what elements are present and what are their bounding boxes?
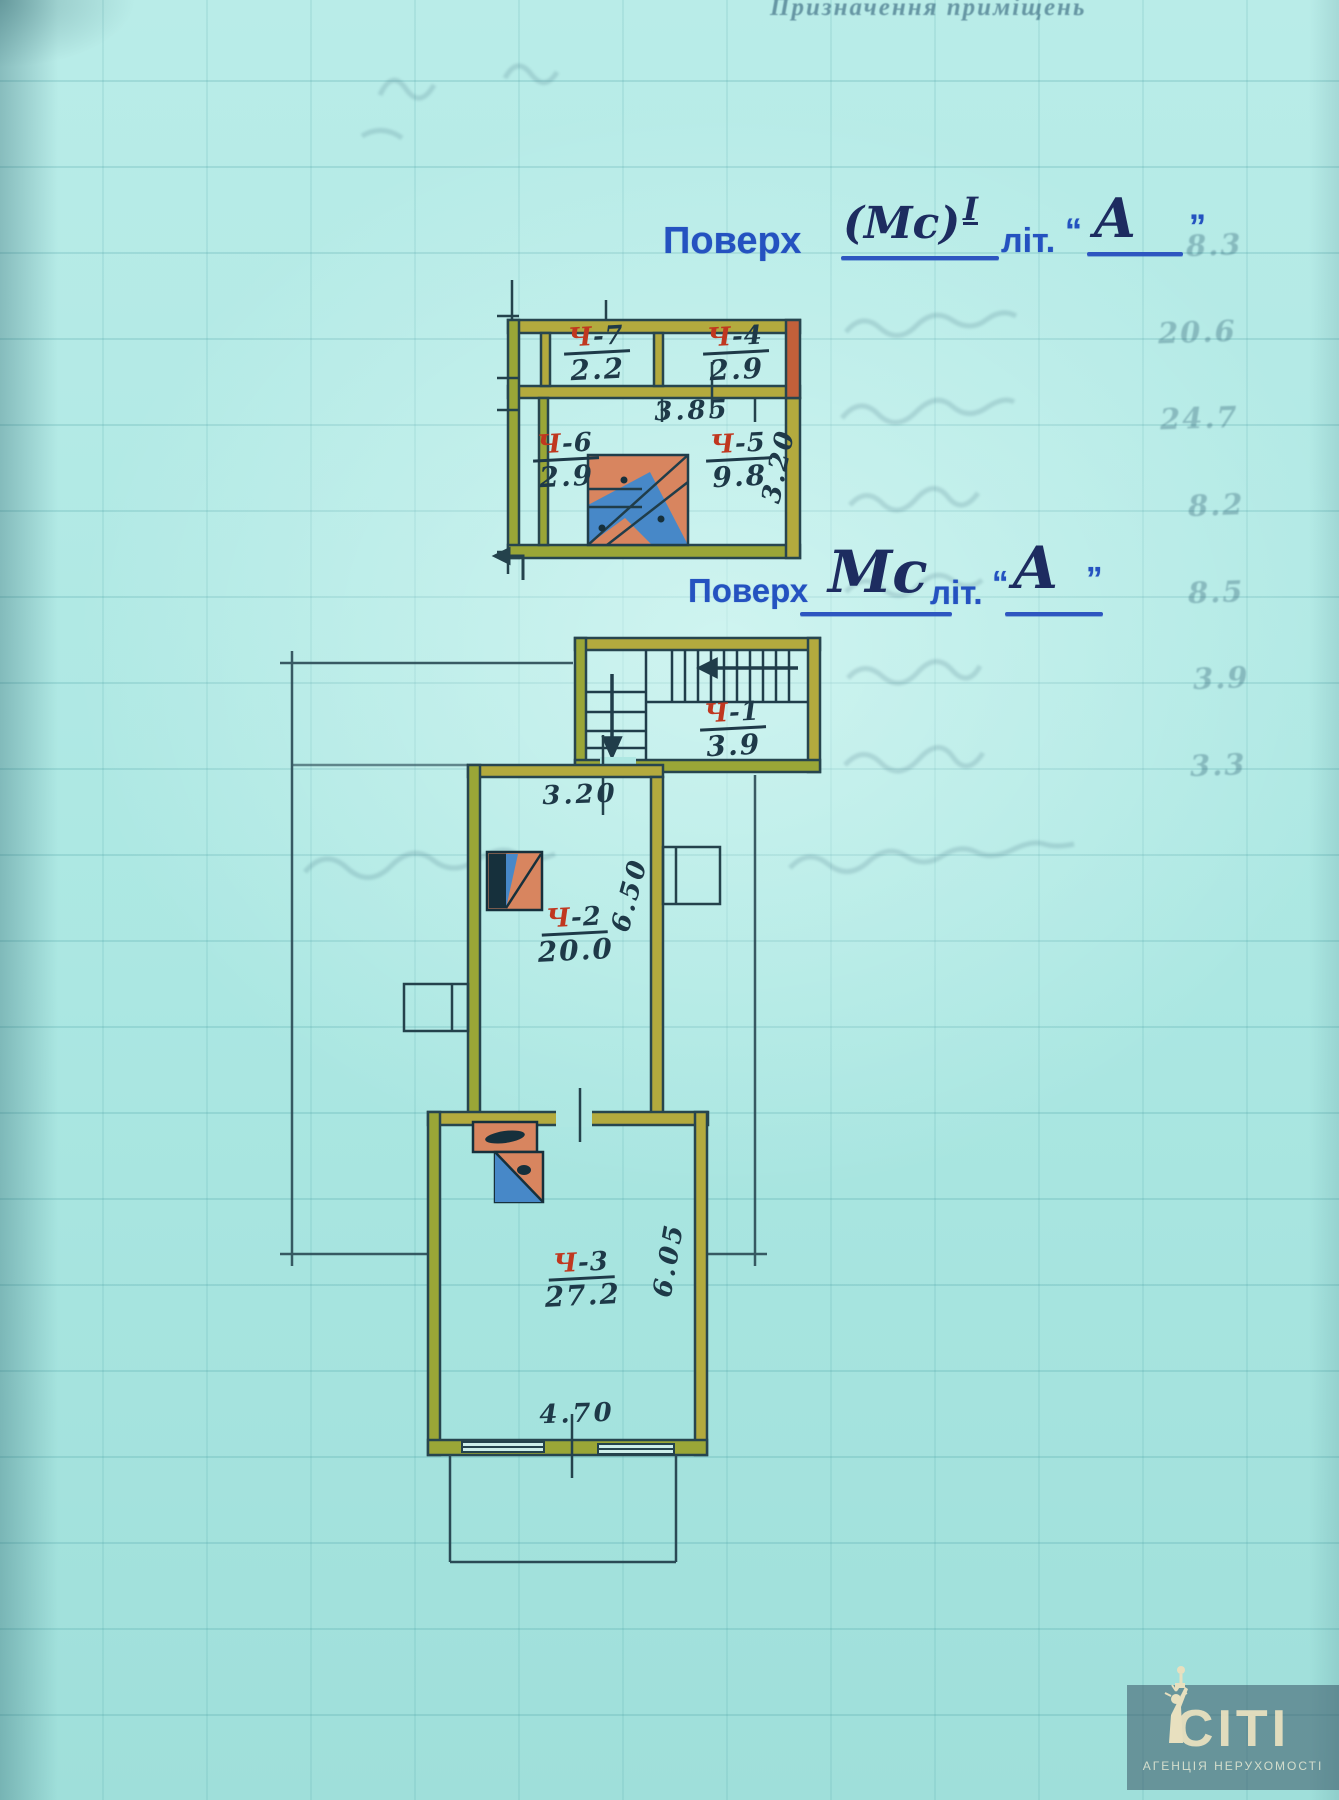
mezzanine-stairs-icon — [588, 455, 688, 545]
ghost-value: 8.3 — [1185, 227, 1243, 263]
dim-mezzanine-width: 3.85 — [654, 395, 730, 428]
blank-underline — [841, 256, 999, 260]
title-word-lit: літ. — [1001, 222, 1055, 261]
dim-hall-width: 3.20 — [542, 779, 618, 812]
title-word-floor: Поверх — [688, 572, 808, 610]
floor-title-mezzanine: Поверх (Мс) I літ. “ А ” — [663, 190, 1223, 270]
ghost-value: 8.2 — [1187, 487, 1245, 523]
handwritten-roman-numeral: I — [963, 190, 978, 228]
blank-underline — [1005, 612, 1103, 616]
brand-subtitle: АГЕНЦІЯ НЕРУХОМОСТІ — [1143, 1759, 1324, 1773]
room-label-ch4: Ч-4 2.9 — [702, 322, 771, 388]
handwritten-floor-value: (Мс) — [843, 198, 960, 249]
room-label-ch2: Ч-2 20.0 — [535, 903, 614, 969]
title-word-lit: літ. — [930, 574, 983, 612]
handwritten-floor-value: Мс — [828, 538, 928, 606]
floorplan-drawing — [0, 0, 1339, 1800]
ghost-value: 8.5 — [1187, 574, 1245, 610]
ghost-value: 24.7 — [1159, 400, 1239, 437]
quote-open: “ — [1065, 212, 1082, 251]
room-label-ch7: Ч-7 2.2 — [563, 322, 632, 388]
ghost-value: 3.9 — [1192, 660, 1250, 696]
citi-logo-watermark: СІТІ АГЕНЦІЯ НЕРУХОМОСТІ — [1127, 1685, 1339, 1790]
floor-title-ground: Поверх Мс літ. “ А ” — [688, 556, 1158, 632]
room-label-ch1: Ч-1 3.9 — [699, 698, 768, 764]
scanned-floorplan-page: Призначення приміщень — [0, 0, 1339, 1800]
room-label-ch3: Ч-3 27.2 — [542, 1248, 621, 1314]
blank-underline — [800, 612, 952, 616]
blank-underline — [1087, 252, 1183, 256]
room-label-ch6: Ч-6 2.9 — [532, 429, 601, 495]
ghost-value: 3.3 — [1189, 747, 1247, 783]
door-opening — [556, 1110, 592, 1127]
handwritten-letter: А — [1093, 186, 1137, 250]
porch-outline — [450, 1455, 676, 1562]
room3-stove-icon — [473, 1122, 543, 1202]
statue-of-liberty-icon — [1161, 1663, 1197, 1749]
title-word-floor: Поверх — [663, 220, 801, 263]
quote-open: “ — [992, 564, 1009, 602]
stairs-down-arrow-icon — [604, 674, 620, 756]
room2-stove-icon — [487, 852, 542, 910]
ghost-value: 20.6 — [1157, 314, 1237, 351]
handwritten-letter: А — [1012, 534, 1059, 602]
dim-room3-width: 4.70 — [539, 1398, 615, 1431]
room2-window-right — [663, 847, 720, 904]
ghost-handwriting-squiggles — [305, 66, 1074, 878]
quote-close: ” — [1086, 560, 1103, 598]
room2-window-left — [404, 984, 468, 1031]
